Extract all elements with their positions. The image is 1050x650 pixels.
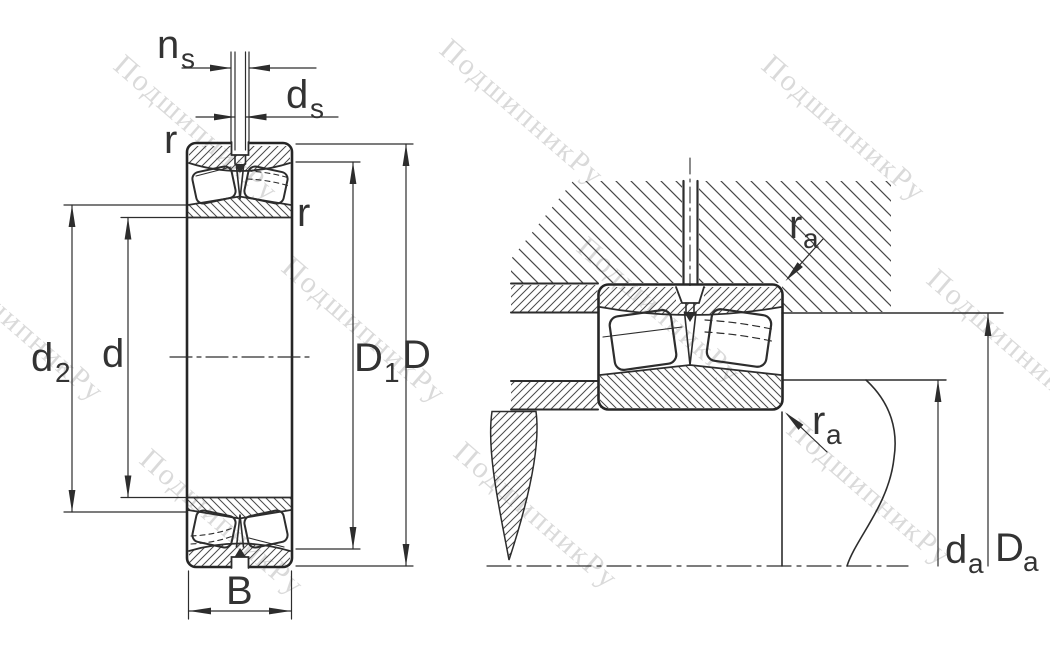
shaft-shoulder-section [491,412,537,561]
label-d2-sub: 2 [55,357,71,388]
label-Da-sub: a [1023,546,1039,577]
watermark-text: ПодшипникРу [107,48,285,208]
abutment-rings [511,285,598,410]
technical-drawing: ПодшипникРу ПодшипникРу ПодшипникРу Подш… [0,0,1050,650]
inner-ring-section [188,197,291,519]
watermark-text: ПодшипникРу [447,435,625,595]
label-ra-housing: r [789,203,802,247]
label-Da: D [995,526,1024,570]
watermark-text: ПодшипникРу [780,412,958,572]
label-r-outer: r [164,118,177,162]
label-da-sub: a [968,548,984,579]
label-D1-sub: 1 [384,357,400,388]
mounting-arrangement-figure: r a r a d a D a [487,158,1039,579]
label-ns-sub: s [181,43,195,74]
label-ra-shaft: r [812,399,825,443]
watermark-text: ПодшипникРу [433,32,611,192]
label-D: D [402,333,431,377]
label-B: B [226,569,253,613]
watermark-text: ПодшипникРу [275,250,453,410]
label-d: d [102,332,124,376]
dimension-Da [985,314,992,566]
label-ra-housing-sub: a [803,223,819,254]
label-D1: D [354,336,383,380]
label-ns: n [157,23,179,67]
label-da: d [945,528,967,572]
label-d2: d [31,336,53,380]
watermark-layer: ПодшипникРу ПодшипникРу ПодшипникРу Подш… [0,32,1050,602]
label-ds-sub: s [310,93,324,124]
drawing-canvas: ПодшипникРу ПодшипникРу ПодшипникРу Подш… [0,0,1050,650]
label-ra-shaft-sub: a [826,419,842,450]
label-r-inner: r [297,191,310,235]
label-ds: d [286,73,308,117]
